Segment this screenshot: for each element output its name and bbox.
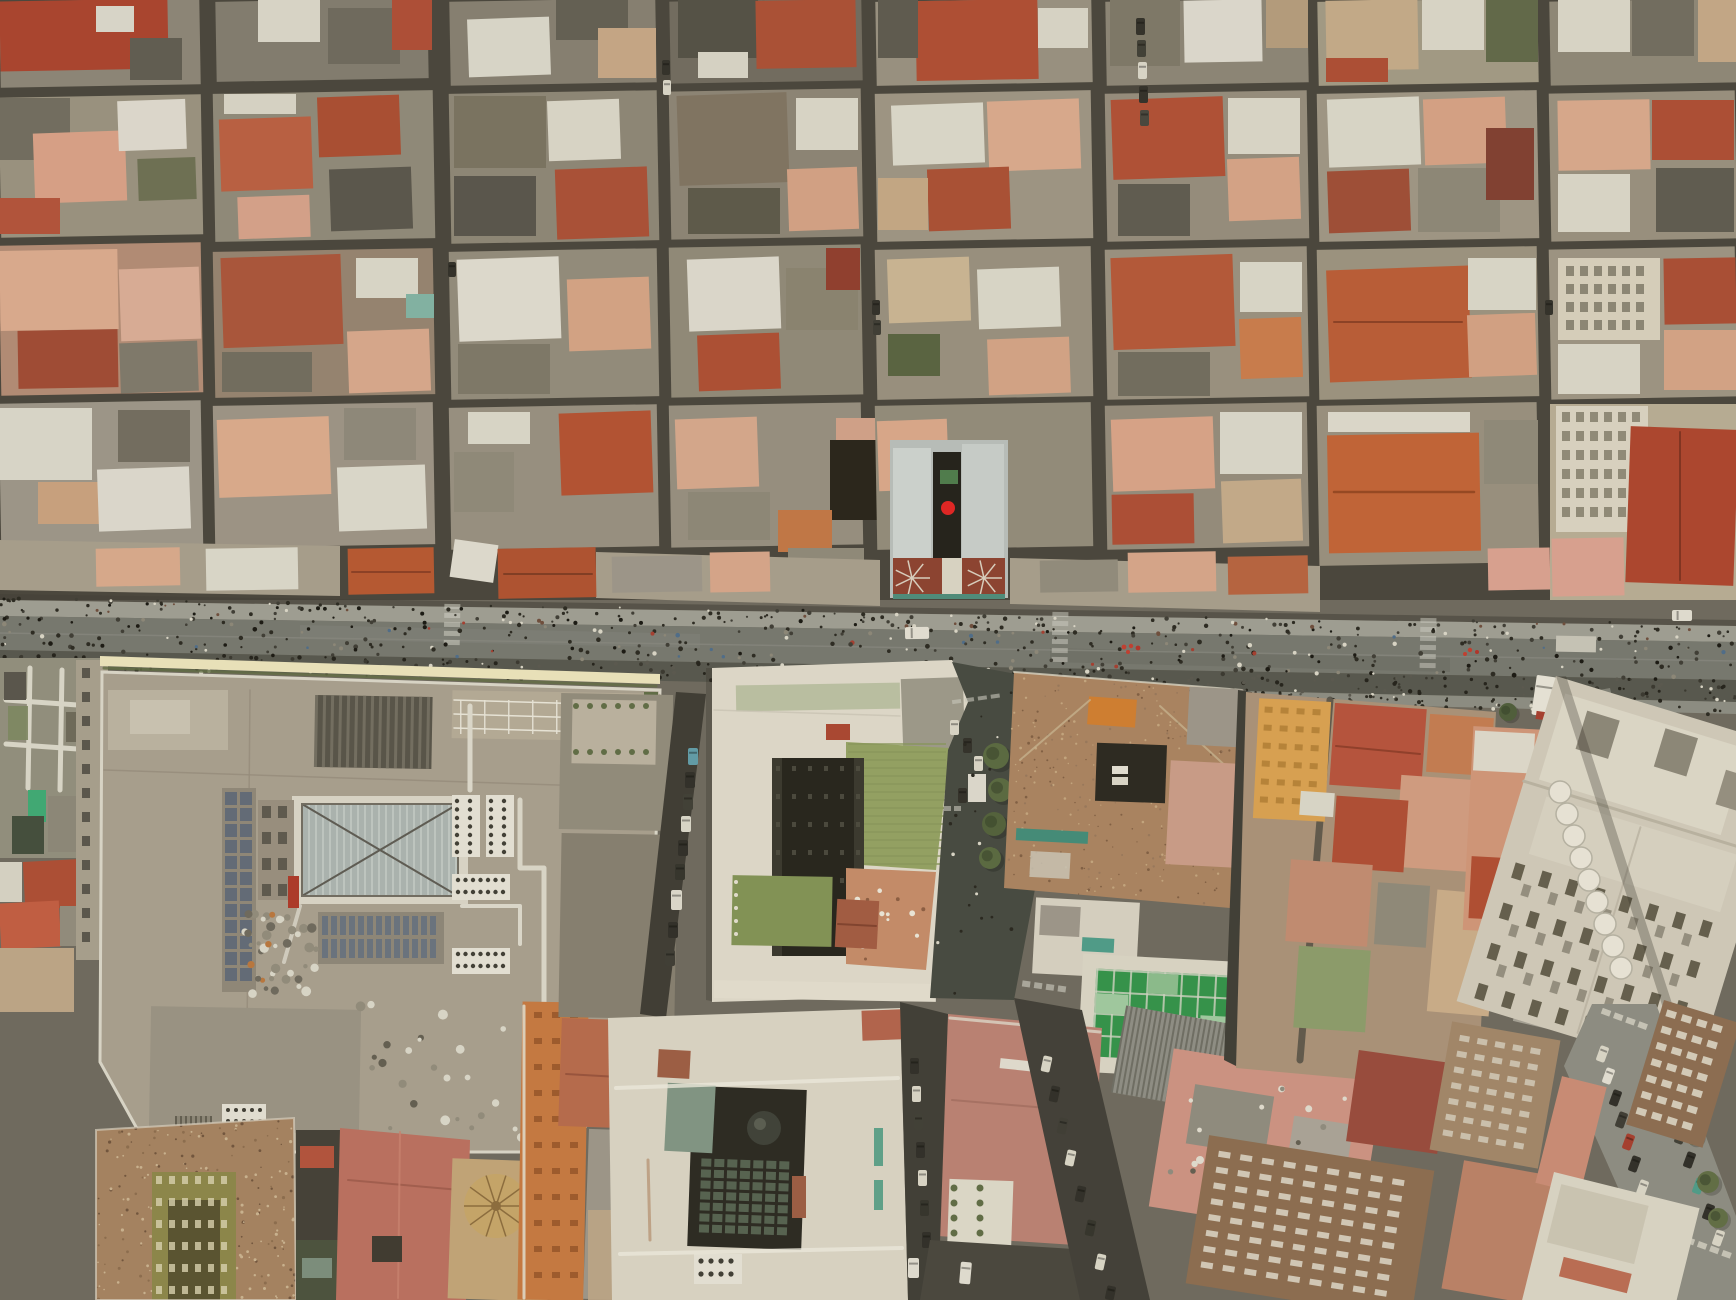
- tone-overlay: [0, 0, 1736, 1300]
- aerial-cityscape-photo: [0, 0, 1736, 1300]
- aerial-photo-canvas: [0, 0, 1736, 1300]
